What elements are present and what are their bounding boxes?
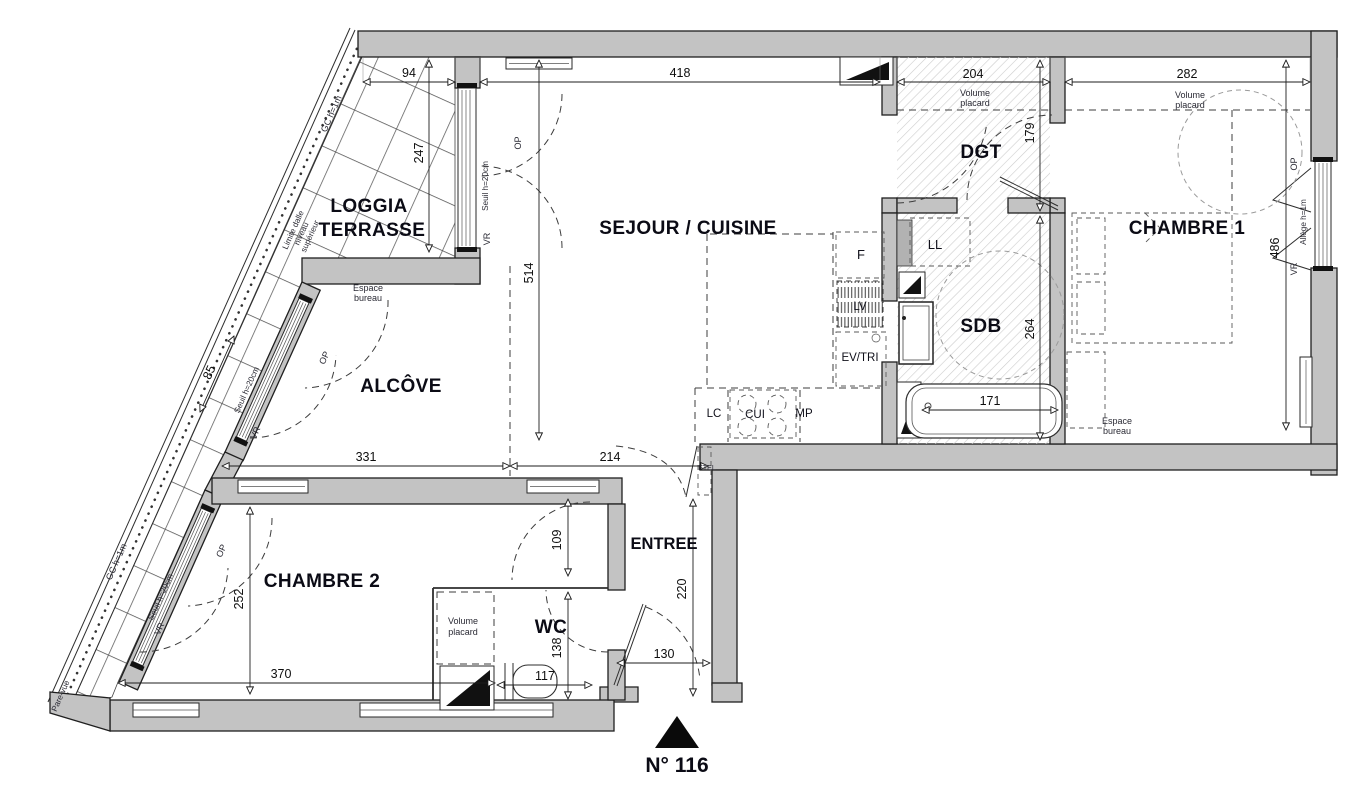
svg-text:placard: placard xyxy=(1175,100,1205,110)
unit-number: N° 116 xyxy=(645,754,708,777)
north-triangle-icon xyxy=(655,716,699,748)
op-chambre1: OP xyxy=(1289,157,1299,170)
label-cui: CUI xyxy=(745,409,765,421)
dim-130: 130 xyxy=(654,647,675,661)
volume-placard-dgt: Volume placard xyxy=(960,88,990,108)
vr-chambre1: VR xyxy=(1289,262,1299,275)
svg-text:Volume: Volume xyxy=(448,616,478,626)
label-etel: ETEL xyxy=(698,465,716,472)
dim-418: 418 xyxy=(670,66,691,80)
room-label-loggia-2: TERRASSE xyxy=(319,220,426,241)
dim-117: 117 xyxy=(535,669,555,683)
wall-top xyxy=(358,31,1337,57)
dim-204: 204 xyxy=(963,67,984,81)
room-label-alcove: ALCÔVE xyxy=(360,375,442,397)
op-chambre2: OP xyxy=(214,543,228,559)
room-label-entree: ENTREE xyxy=(631,535,698,553)
gc-bottom: GC h=1m xyxy=(104,542,129,581)
svg-text:placard: placard xyxy=(448,627,478,637)
alcove-walls xyxy=(119,258,480,690)
door-leaf-sejour-entree xyxy=(686,446,697,497)
duct-top xyxy=(840,57,893,85)
op-alcove: OP xyxy=(317,350,331,366)
svg-text:bureau: bureau xyxy=(1103,426,1131,436)
volume-placard-wc: Volume placard xyxy=(448,616,478,637)
wall-right-upper xyxy=(1311,31,1337,161)
dim-486: 486 xyxy=(1268,238,1282,259)
radiator xyxy=(238,480,308,493)
radiator xyxy=(1300,357,1312,427)
volume-placard-chambre1: Volume placard xyxy=(1175,90,1205,110)
dim-331: 331 xyxy=(356,450,377,464)
desk-chambre1 xyxy=(1067,352,1105,428)
wall-wc-entree-upper xyxy=(608,504,625,590)
allege-chambre1: Allège h=1m xyxy=(1299,199,1308,245)
floor-plan-page: LOGGIA TERRASSE SEJOUR / CUISINE ALCÔVE … xyxy=(0,0,1367,800)
label-lv: LV xyxy=(853,301,867,313)
dim-282: 282 xyxy=(1177,67,1198,81)
wall-entree-right xyxy=(712,470,737,685)
kitchen xyxy=(695,232,886,442)
sejour-west-wall xyxy=(455,57,480,284)
espace-bureau-chambre1: Espace bureau xyxy=(1102,416,1132,436)
room-label-sejour: SEJOUR / CUISINE xyxy=(599,218,776,239)
dim-514: 514 xyxy=(522,263,536,284)
dim-264: 264 xyxy=(1023,319,1037,340)
dim-370: 370 xyxy=(271,667,292,681)
svg-text:Volume: Volume xyxy=(1175,90,1205,100)
label-f: F xyxy=(857,247,865,262)
label-lc: LC xyxy=(707,408,722,420)
dim-138: 138 xyxy=(550,638,564,659)
dim-109: 109 xyxy=(550,530,564,551)
unit-marker: N° 116 xyxy=(645,716,708,777)
svg-text:placard: placard xyxy=(960,98,990,108)
svg-text:Volume: Volume xyxy=(960,88,990,98)
label-mp: MP xyxy=(795,408,813,420)
door-leaf-entry xyxy=(614,604,643,685)
wall-wc-entree-lower xyxy=(608,650,625,700)
op-sejour: OP xyxy=(513,136,523,149)
placards xyxy=(437,110,1310,664)
room-label-wc: WC xyxy=(535,617,567,638)
wall-bottom-right xyxy=(700,444,1337,470)
svg-text:Espace: Espace xyxy=(1102,416,1132,426)
floor-plan-drawing: LOGGIA TERRASSE SEJOUR / CUISINE ALCÔVE … xyxy=(0,0,1367,800)
dim-94: 94 xyxy=(402,66,416,80)
room-label-sdb: SDB xyxy=(960,316,1001,337)
wall-entry-corner xyxy=(712,683,742,702)
dim-85: 85 xyxy=(200,363,218,381)
dim-214: 214 xyxy=(600,450,621,464)
sdb-door-slab xyxy=(899,302,933,364)
espace-bureau-alcove: Espace bureau xyxy=(353,283,383,303)
label-ev-tri: EV/TRI xyxy=(841,352,878,364)
wall-alcove-top xyxy=(302,258,480,284)
label-ll: LL xyxy=(928,237,942,252)
room-label-loggia-1: LOGGIA xyxy=(330,196,407,217)
sejour-window xyxy=(458,88,476,248)
svg-text:bureau: bureau xyxy=(354,293,382,303)
svg-text:Espace: Espace xyxy=(353,283,383,293)
dim-171: 171 xyxy=(980,394,1001,408)
radiator xyxy=(527,480,599,493)
room-label-chambre1: CHAMBRE 1 xyxy=(1129,218,1246,239)
dim-247: 247 xyxy=(412,143,426,164)
room-label-dgt: DGT xyxy=(960,142,1001,163)
vr-sejour: VR xyxy=(482,232,492,245)
dim-179: 179 xyxy=(1023,123,1037,144)
dim-252: 252 xyxy=(232,589,246,610)
bathtub xyxy=(906,384,1062,438)
dim-220: 220 xyxy=(675,579,689,600)
room-label-chambre2: CHAMBRE 2 xyxy=(264,571,381,592)
furniture xyxy=(1067,90,1302,428)
seuil-sejour: Seuil h=20cm xyxy=(481,161,490,211)
